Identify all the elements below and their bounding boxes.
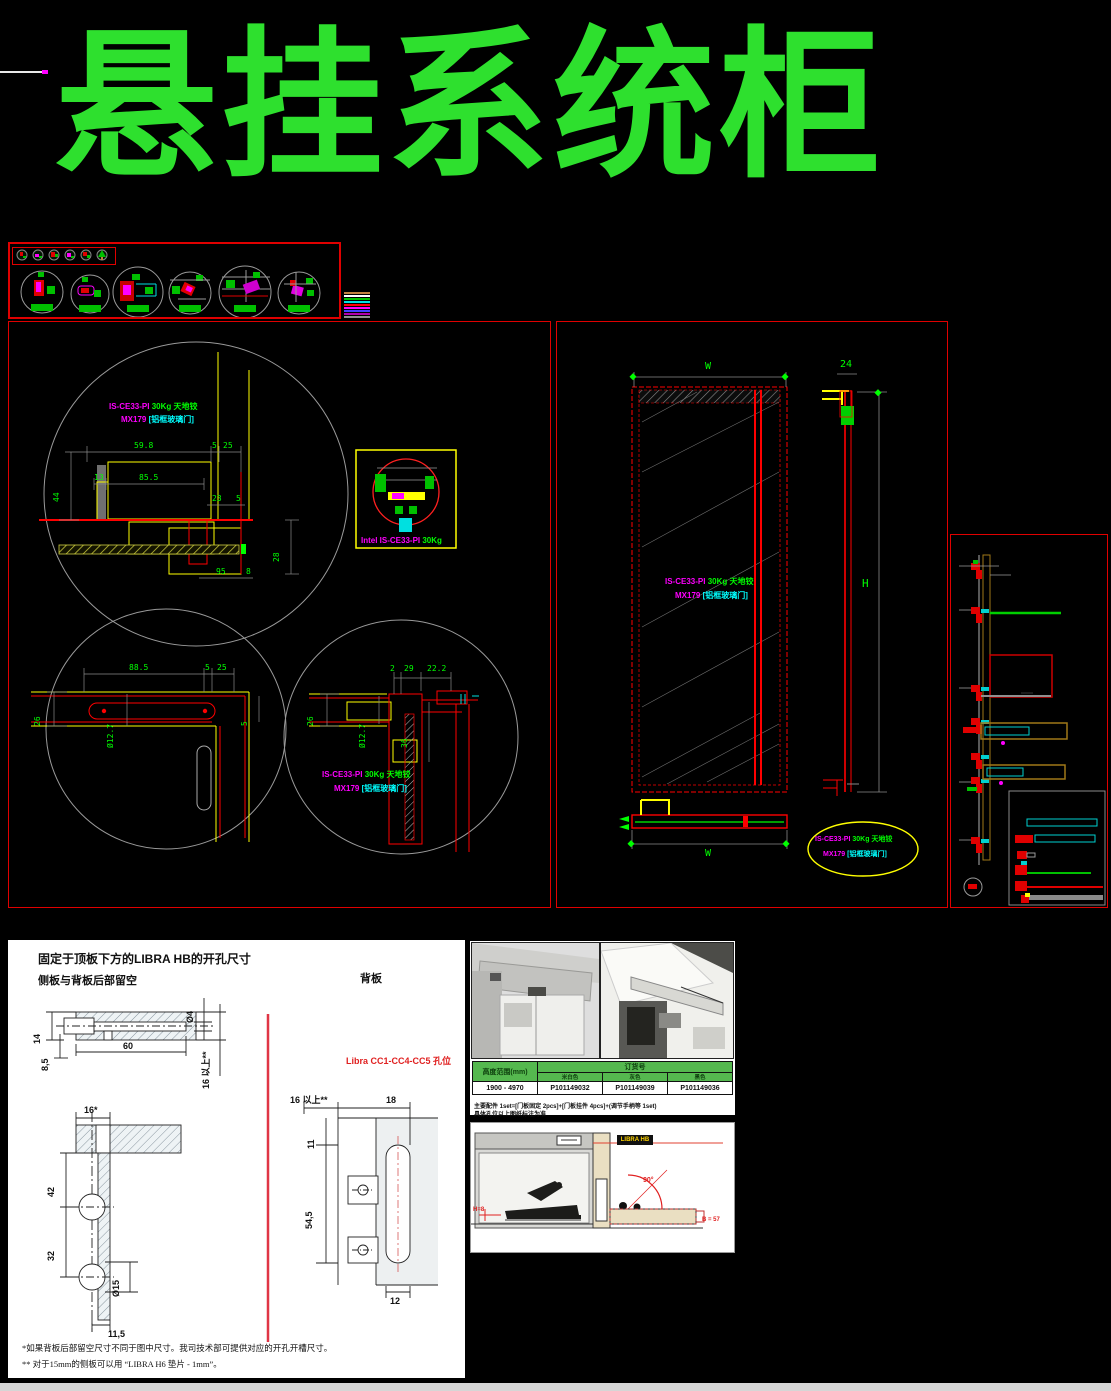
dim-44: 44: [53, 492, 61, 502]
dim-5b: 5: [236, 495, 241, 503]
ellipse-label-line2: MX179 [铝框玻璃门]: [823, 851, 887, 859]
dim-13: 13: [94, 474, 104, 482]
dim-25b: 25: [217, 664, 227, 672]
drilling-dimensions-sheet: 固定于顶板下方的LIBRA HB的开孔尺寸 侧板与背板后部留空 背板 Libra…: [8, 940, 465, 1378]
ellipse-hinge-weight: 30Kg 天地铰: [852, 836, 892, 843]
dim-8: 8: [246, 568, 251, 576]
detail1-hinge-code: IS-CE33-PI: [109, 402, 149, 411]
dim-95: 95: [216, 568, 226, 576]
dim-22-2: 22.2: [427, 665, 446, 673]
dim-23: 23: [212, 495, 222, 503]
dim-5d: 5: [241, 721, 249, 726]
detail3-door-type: [铝框玻璃门]: [362, 784, 407, 793]
intel-detail-label: Intel IS-CE33-PI 30Kg: [361, 536, 442, 546]
bdim-42: 42: [47, 1187, 56, 1197]
dim-88-5: 88.5: [129, 664, 148, 672]
dim-26a: 26: [34, 716, 42, 726]
bdim-d4: Ø4: [186, 1011, 195, 1023]
opening-angle-label: 90°: [643, 1177, 654, 1184]
detail3-hinge-weight: 30Kg 天地铰: [365, 770, 411, 779]
detail3-hinge-model: MX179: [334, 784, 359, 793]
door-hinge-weight: 30Kg 天地铰: [708, 577, 754, 586]
order-subheader-2: 灰色: [603, 1073, 668, 1082]
detail-thumbnails-drawing: [10, 244, 341, 317]
detail-views-panel: IS-CE33-PI 30Kg 天地铰 MX179 [铝框玻璃门] 59.8 5…: [8, 321, 551, 908]
bdim-16star: 16*: [84, 1106, 98, 1115]
bdim-d15: Ø15: [112, 1280, 121, 1297]
section-views-panel: [950, 534, 1108, 908]
footnote-2: ** 对于15mm的侧板可以用 “LIBRA H6 垫片 - 1mm”。: [22, 1358, 222, 1370]
bdim-14: 14: [33, 1034, 42, 1044]
drilling-drawing: [8, 940, 465, 1378]
order-note-2: 具体孔位以上图纸标注为准: [474, 1109, 546, 1118]
photo-right-image: [601, 943, 733, 1058]
order-col-range-header: 高度范围(mm): [473, 1062, 538, 1082]
dim-5a: 5: [212, 442, 217, 450]
bdim-18: 18: [386, 1096, 396, 1105]
order-range-value: 1900 - 4970: [473, 1082, 538, 1095]
intel-hinge-code: Intel IS-CE33-PI: [361, 536, 420, 545]
dim-b57-label: B = 57: [702, 1217, 720, 1223]
detail3-label-line2: MX179 [铝框玻璃门]: [334, 784, 407, 794]
order-code-2: P101149039: [603, 1082, 668, 1095]
axis-tick-line: [0, 71, 46, 73]
door-door-type: [铝框玻璃门]: [703, 591, 748, 600]
photo-left-image: [472, 943, 599, 1058]
dim-door-width-bottom: W: [705, 849, 711, 859]
bdim-32: 32: [47, 1251, 56, 1261]
door-label-line2: MX179 [铝框玻璃门]: [675, 591, 748, 601]
photo-left: [471, 942, 600, 1059]
dim-29: 29: [404, 665, 414, 673]
detail1-label-line1: IS-CE33-PI 30Kg 天地铰: [109, 402, 198, 412]
detail3-hinge-code: IS-CE33-PI: [322, 770, 362, 779]
detail1-hinge-model: MX179: [121, 415, 146, 424]
detail1-hinge-weight: 30Kg 天地铰: [152, 402, 198, 411]
bdim-16up-c: 16 以上**: [290, 1096, 328, 1105]
detail1-label-line2: MX179 [铝框玻璃门]: [121, 415, 194, 425]
dim-h8-label: H=8: [473, 1207, 484, 1213]
order-table-wrap: 高度范围(mm) 订货号 米白色 灰色 黑色 1900 - 4970 P1011…: [472, 1061, 733, 1095]
door-hinge-code: IS-CE33-PI: [665, 577, 705, 586]
dim-85-5: 85.5: [139, 474, 158, 482]
detail3-label-line1: IS-CE33-PI 30Kg 天地铰: [322, 770, 411, 780]
line-color-legend-drawing: [344, 292, 370, 320]
ellipse-door-type: [铝框玻璃门]: [847, 851, 887, 858]
cad-viewport: 悬挂系统柜: [0, 0, 1111, 1391]
order-table: 高度范围(mm) 订货号 米白色 灰色 黑色 1900 - 4970 P1011…: [472, 1061, 733, 1095]
dim-59-8: 59.8: [134, 442, 153, 450]
dim-door-width-top: W: [705, 362, 711, 372]
bottom-strip: [0, 1383, 1111, 1391]
door-hinge-model: MX179: [675, 591, 700, 600]
detail-views-drawing: [9, 322, 550, 907]
bdim-12: 12: [390, 1297, 400, 1306]
details-strip-panel: [8, 242, 341, 319]
dim-5c: 5: [205, 664, 210, 672]
bdim-54-5: 54,5: [305, 1211, 314, 1229]
reference-photos-panel: 高度范围(mm) 订货号 米白色 灰色 黑色 1900 - 4970 P1011…: [470, 941, 735, 1115]
order-code-3: P101149036: [668, 1082, 733, 1095]
order-codes-header: 订货号: [538, 1062, 733, 1073]
product-tag: LIBRA HB: [617, 1135, 653, 1145]
order-code-1: P101149032: [538, 1082, 603, 1095]
photo-right: [600, 942, 734, 1059]
cc-holes-label: Libra CC1-CC4-CC5 孔位: [346, 1054, 451, 1067]
bdim-11-5: 11,5: [108, 1330, 125, 1339]
dim-26b: 26: [307, 716, 315, 726]
door-elevation-drawing: [557, 322, 947, 907]
page-title: 悬挂系统柜: [55, 22, 885, 192]
back-panel-label: 背板: [360, 970, 382, 986]
dim-door-thickness: 24: [840, 360, 852, 370]
dim-d12-7b: Ø12.7: [359, 724, 367, 748]
dim-28: 28: [273, 552, 281, 562]
dim-2: 2: [390, 665, 395, 673]
bdim-11: 11: [307, 1139, 316, 1149]
ellipse-hinge-code: IS-CE33-PI: [815, 836, 850, 843]
bdim-8-5: 8,5: [41, 1058, 50, 1071]
drill-heading-2: 侧板与背板后部留空: [38, 972, 137, 988]
drill-heading-1: 固定于顶板下方的LIBRA HB的开孔尺寸: [38, 950, 251, 967]
ellipse-label-line1: IS-CE33-PI 30Kg 天地铰: [815, 836, 892, 844]
dim-25a: 25: [223, 442, 233, 450]
section-views-drawing: [951, 535, 1107, 907]
axis-tick-cursor: [42, 70, 48, 74]
bdim-16up-a: 16 以上**: [202, 1051, 211, 1089]
intel-hinge-weight: 30Kg: [422, 536, 442, 545]
installation-drawing: [471, 1123, 734, 1252]
bdim-60: 60: [123, 1042, 133, 1051]
order-subheader-3: 黑色: [668, 1073, 733, 1082]
detail1-door-type: [铝框玻璃门]: [149, 415, 194, 424]
order-subheader-1: 米白色: [538, 1073, 603, 1082]
installation-section-drawing: LIBRA HB 90° B = 57 H=8: [470, 1122, 735, 1253]
footnote-1: *如果背板后部留空尺寸不同于图中尺寸。我司技术部可提供对应的开孔开槽尺寸。: [22, 1342, 332, 1354]
dim-36: 36: [401, 738, 409, 748]
door-label-line1: IS-CE33-PI 30Kg 天地铰: [665, 577, 754, 587]
dim-d12-7a: Ø12.7: [107, 724, 115, 748]
door-elevation-panel: W 24 H W IS-CE33-PI 30Kg 天地铰 MX179 [铝框玻璃…: [556, 321, 948, 908]
ellipse-hinge-model: MX179: [823, 851, 845, 858]
dim-door-height: H: [862, 578, 869, 589]
